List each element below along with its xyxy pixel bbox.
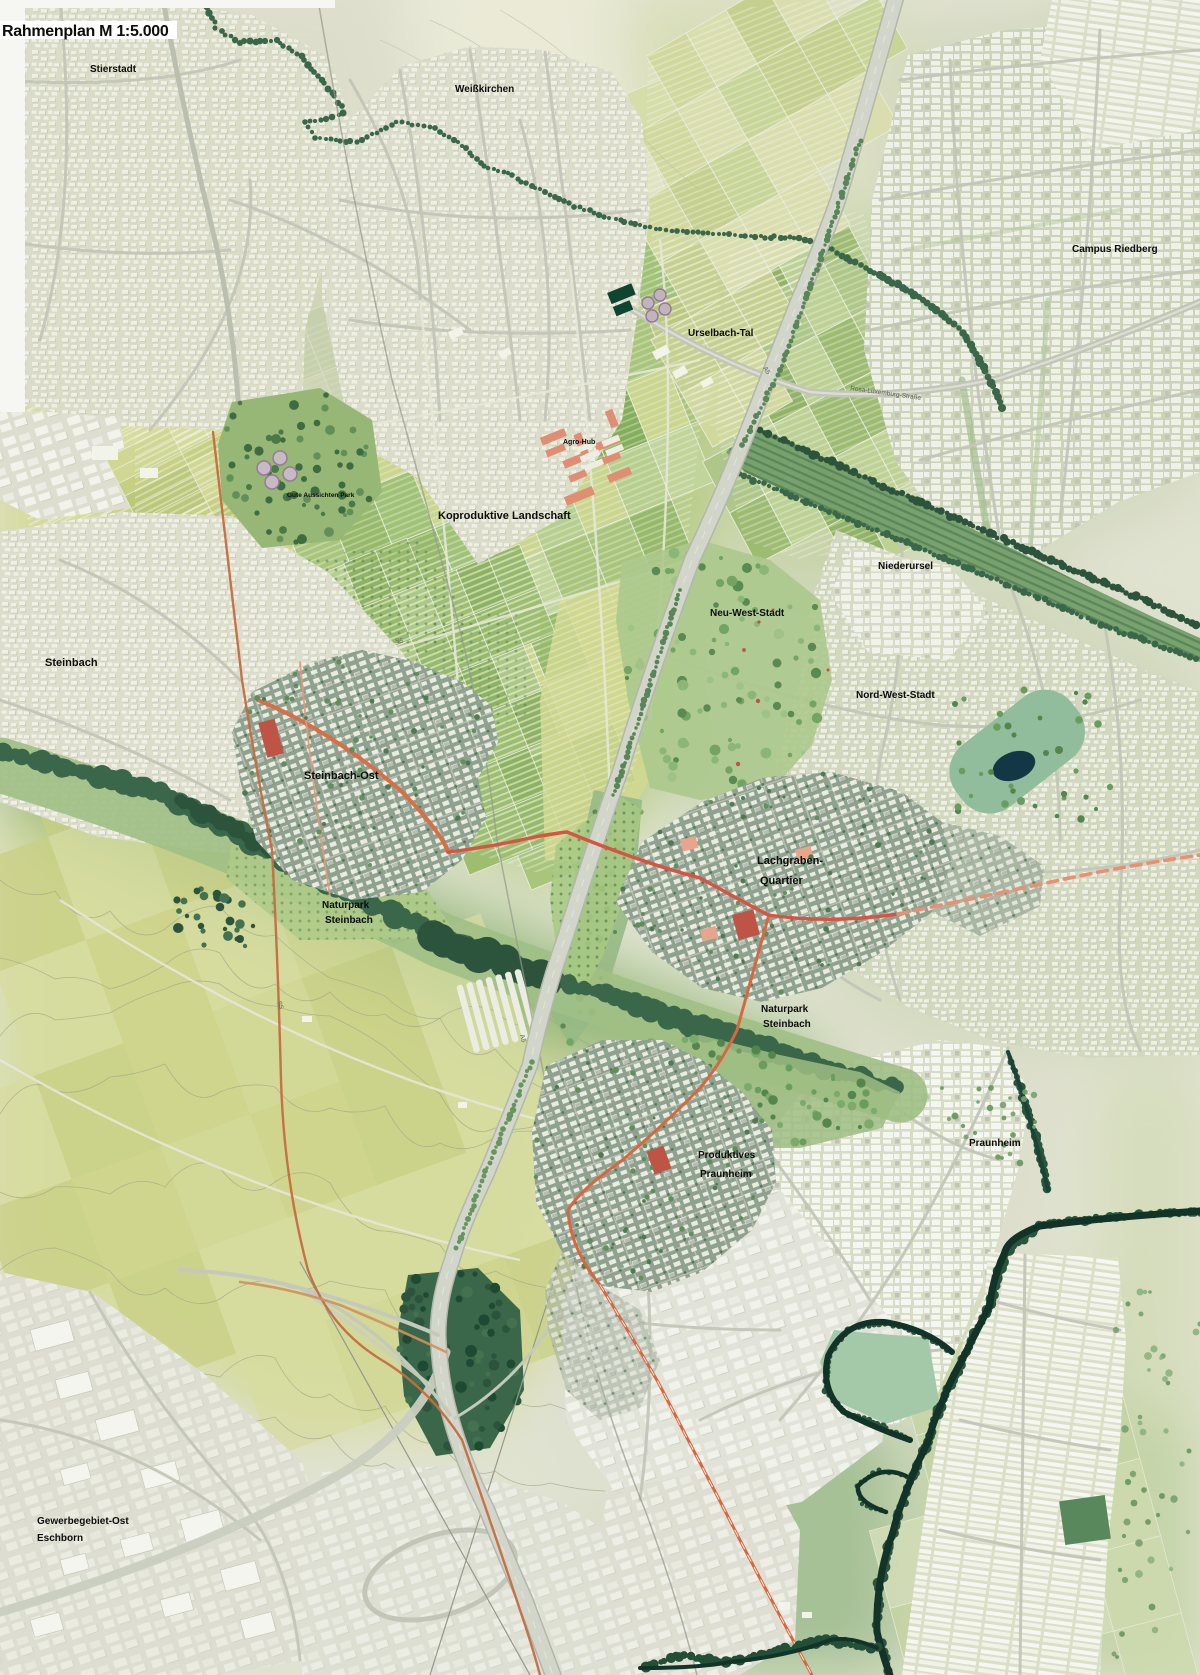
svg-text:Quartier: Quartier [760,875,804,887]
svg-text:Praunheim: Praunheim [700,1169,752,1180]
svg-text:Gute Aussichten Park: Gute Aussichten Park [287,492,355,499]
svg-text:Weißkirchen: Weißkirchen [455,84,514,95]
svg-text:S5: S5 [395,638,403,645]
svg-text:Agro-Hub: Agro-Hub [563,439,595,446]
svg-text:Steinbach: Steinbach [325,915,373,926]
svg-text:Steinbach-Ost: Steinbach-Ost [304,770,379,782]
svg-text:Praunheim: Praunheim [969,1138,1021,1149]
svg-text:Nord-West-Stadt: Nord-West-Stadt [856,690,935,701]
svg-text:Gewerbegebiet-Ost: Gewerbegebiet-Ost [37,1516,129,1527]
svg-text:Urselbach-Tal: Urselbach-Tal [688,328,754,339]
svg-text:Koproduktive Landschaft: Koproduktive Landschaft [438,510,571,522]
svg-text:Campus Riedberg: Campus Riedberg [1072,244,1158,255]
svg-text:Stierstadt: Stierstadt [90,64,137,75]
svg-text:Rahmenplan M 1:5.000: Rahmenplan M 1:5.000 [2,23,169,40]
svg-text:Naturpark: Naturpark [761,1004,809,1015]
svg-text:Steinbach: Steinbach [45,657,98,669]
svg-text:Eschborn: Eschborn [37,1533,83,1544]
svg-text:Lachgraben-: Lachgraben- [757,855,823,867]
svg-text:Naturpark: Naturpark [322,900,370,911]
svg-text:Produktives: Produktives [698,1150,756,1161]
svg-text:Steinbach: Steinbach [763,1019,811,1030]
svg-text:Neu-West-Stadt: Neu-West-Stadt [710,608,785,619]
svg-text:Niederursel: Niederursel [878,561,933,572]
